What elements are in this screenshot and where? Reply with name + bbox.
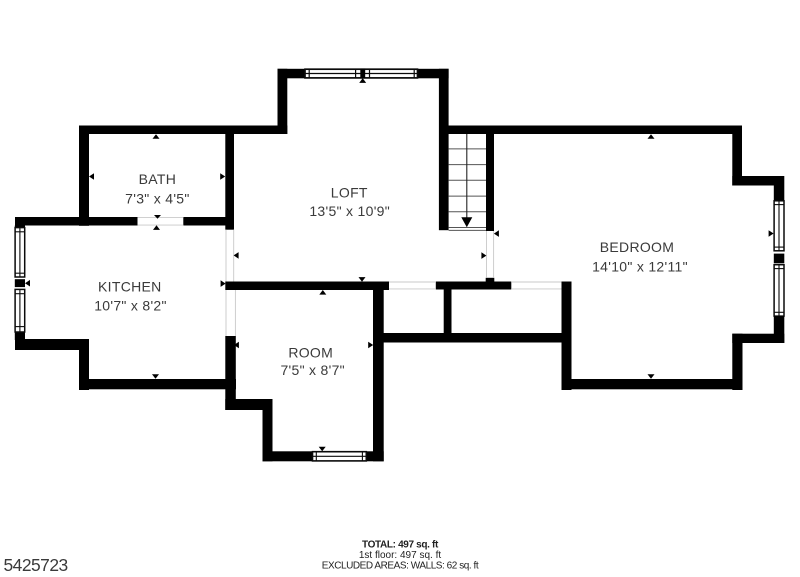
- svg-text:LOFT: LOFT: [331, 185, 368, 201]
- svg-text:10'7" x 8'2": 10'7" x 8'2": [94, 298, 167, 314]
- svg-text:14'10" x 12'11": 14'10" x 12'11": [592, 259, 688, 275]
- svg-text:13'5" x 10'9": 13'5" x 10'9": [309, 203, 390, 219]
- svg-text:EXCLUDED AREAS: WALLS: 62 sq.: EXCLUDED AREAS: WALLS: 62 sq. ft: [322, 561, 479, 572]
- svg-text:5425723: 5425723: [4, 555, 68, 575]
- svg-text:BEDROOM: BEDROOM: [600, 239, 674, 255]
- svg-text:KITCHEN: KITCHEN: [98, 279, 162, 295]
- svg-text:BATH: BATH: [139, 171, 177, 187]
- svg-text:ROOM: ROOM: [288, 345, 333, 361]
- svg-text:7'5" x 8'7": 7'5" x 8'7": [280, 362, 345, 378]
- svg-text:TOTAL: 497 sq. ft: TOTAL: 497 sq. ft: [362, 539, 439, 550]
- svg-text:7'3" x 4'5": 7'3" x 4'5": [125, 191, 190, 207]
- svg-text:1st floor: 497 sq. ft: 1st floor: 497 sq. ft: [359, 550, 441, 561]
